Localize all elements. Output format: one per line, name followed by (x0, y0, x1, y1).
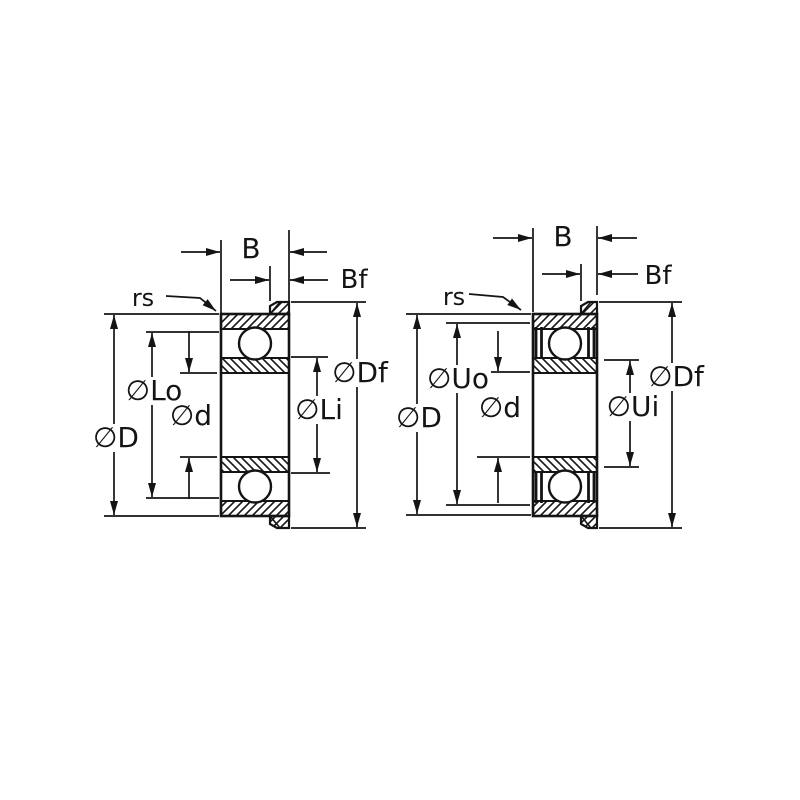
ball-top (549, 328, 581, 360)
dim-label-flange-width-left: Bf (339, 267, 370, 293)
dim-label-flange-width-right: Bf (643, 263, 674, 289)
ball-bottom (549, 471, 581, 503)
dim-label-flange-diameter-left: ∅Df (330, 359, 390, 387)
dim-label-inner-seal-land-right: ∅Ui (605, 393, 662, 421)
dim-label-inner-land-left: ∅Li (293, 396, 345, 424)
dim-label-outer-seal-land-right: ∅Uo (425, 365, 491, 393)
bearing-drawing-canvas: B Bf rs ∅D ∅Lo ∅d ∅Li ∅Df B Bf rs ∅D ∅Uo… (0, 0, 800, 800)
dim-label-chamfer-right: rs (441, 285, 467, 309)
dim-label-bore-right: ∅d (477, 394, 523, 422)
ball-bottom (239, 471, 271, 503)
dim-label-width-right: B (551, 223, 574, 251)
drawing-linework (0, 0, 800, 800)
dim-label-outer-diameter-left: ∅D (91, 424, 141, 452)
dim-label-chamfer-left: rs (130, 286, 156, 310)
dim-label-bore-left: ∅d (168, 402, 214, 430)
dim-label-width-left: B (239, 235, 262, 263)
dim-label-outer-diameter-right: ∅D (394, 404, 444, 432)
dim-label-flange-diameter-right: ∅Df (646, 363, 706, 391)
ball-top (239, 328, 271, 360)
